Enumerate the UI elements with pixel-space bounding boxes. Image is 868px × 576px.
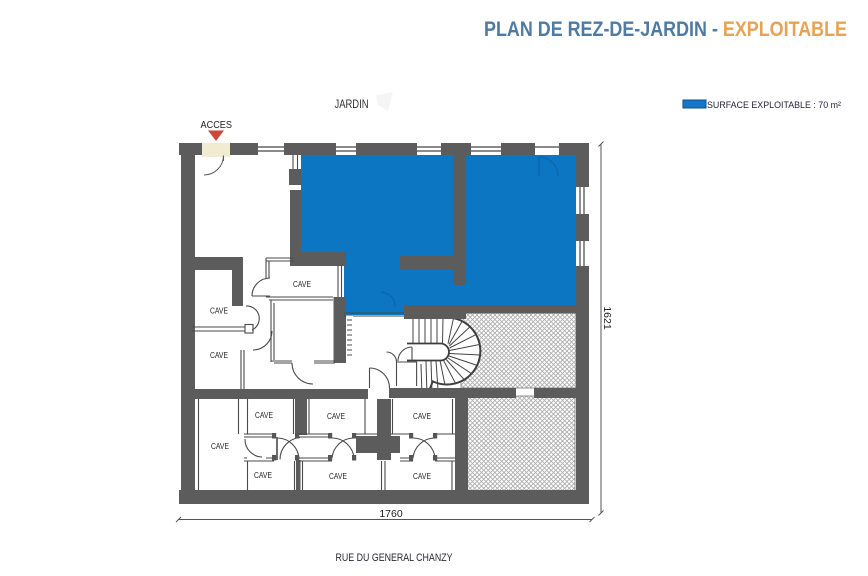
svg-text:CAVE: CAVE [210, 350, 228, 360]
svg-text:CAVE: CAVE [293, 279, 311, 289]
svg-text:1621: 1621 [601, 306, 613, 330]
svg-text:CAVE: CAVE [413, 411, 431, 421]
svg-text:CAVE: CAVE [210, 306, 228, 316]
svg-text:CAVE: CAVE [329, 471, 347, 481]
svg-text:1760: 1760 [379, 508, 403, 520]
svg-text:JARDIN: JARDIN [335, 99, 369, 111]
svg-text:CAVE: CAVE [211, 441, 229, 451]
svg-text:ACCES: ACCES [201, 119, 233, 131]
svg-text:CAVE: CAVE [255, 410, 273, 420]
svg-text:PLAN DE REZ-DE-JARDIN - EXPLOI: PLAN DE REZ-DE-JARDIN - EXPLOITABLE [484, 17, 847, 41]
svg-text:RUE DU GENERAL CHANZY: RUE DU GENERAL CHANZY [336, 552, 454, 564]
svg-text:CAVE: CAVE [254, 470, 272, 480]
svg-text:CAVE: CAVE [327, 411, 345, 421]
svg-text:CAVE: CAVE [413, 471, 431, 481]
svg-text:SURFACE EXPLOITABLE : 70 m²: SURFACE EXPLOITABLE : 70 m² [707, 100, 841, 111]
